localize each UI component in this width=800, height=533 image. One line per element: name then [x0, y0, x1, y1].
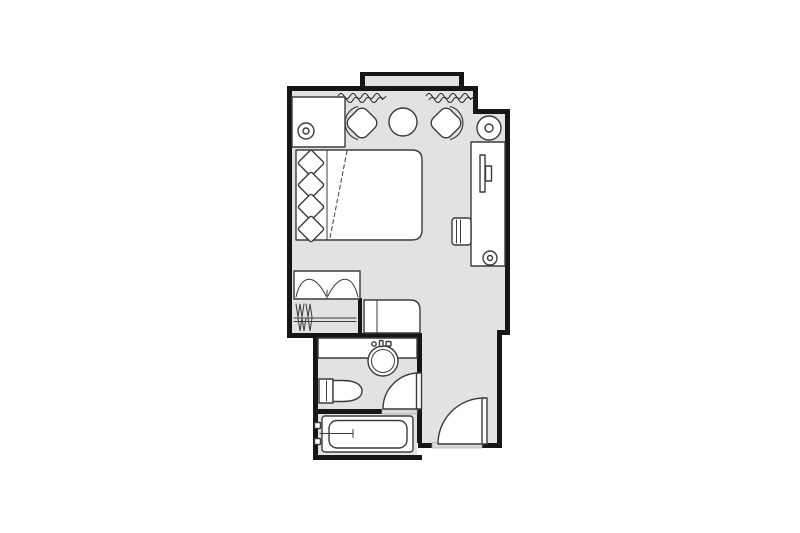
tv-screen: [480, 155, 485, 192]
right-lower-wall: [497, 330, 502, 448]
desk-lamp-center: [488, 256, 493, 261]
nightstand-top: [292, 97, 345, 147]
bathroom-door-leaf: [417, 373, 422, 409]
bathtub-inner: [329, 421, 407, 449]
sink-basin: [368, 346, 398, 376]
toilet-bowl: [333, 381, 362, 402]
mid-wall-band: [287, 333, 422, 338]
bathtub: [315, 416, 414, 452]
floor-lamp-center: [485, 124, 493, 132]
floor-lamp: [477, 116, 501, 140]
sink-faucet-handle-left: [372, 342, 376, 346]
top-wall: [287, 86, 478, 91]
tv-base: [486, 166, 492, 181]
bay-top-wall: [360, 72, 464, 76]
toilet: [319, 379, 362, 403]
table-lamp-center: [303, 128, 309, 134]
desk-chair-seat: [452, 218, 471, 245]
entry-door-leaf: [482, 398, 487, 444]
top-right-step-horizontal: [473, 109, 510, 114]
bathroom-bottom-wall: [313, 455, 422, 460]
floor-plan-drawing: [0, 0, 800, 533]
bed: [296, 150, 422, 243]
bathroom-door-threshold: [382, 409, 417, 414]
tub-faucet-handle-bottom: [315, 439, 321, 445]
sink-faucet-spout: [380, 341, 384, 347]
sink-faucet-handle-right: [386, 342, 391, 347]
nightstand: [292, 97, 345, 147]
round-table: [389, 108, 417, 136]
floor-plan-page: [0, 0, 800, 533]
tub-faucet-handle-top: [315, 423, 321, 429]
vanity-counter: [318, 338, 417, 358]
console-top: [471, 142, 505, 266]
desk-chair: [452, 218, 471, 245]
closet-right-wall: [358, 298, 362, 333]
luggage-bench-top: [364, 300, 420, 333]
luggage-bench: [364, 300, 420, 333]
left-wall: [287, 86, 292, 338]
tv-console: [471, 142, 505, 266]
right-upper-wall: [505, 109, 510, 335]
closet-bifold-doors: [294, 271, 360, 299]
